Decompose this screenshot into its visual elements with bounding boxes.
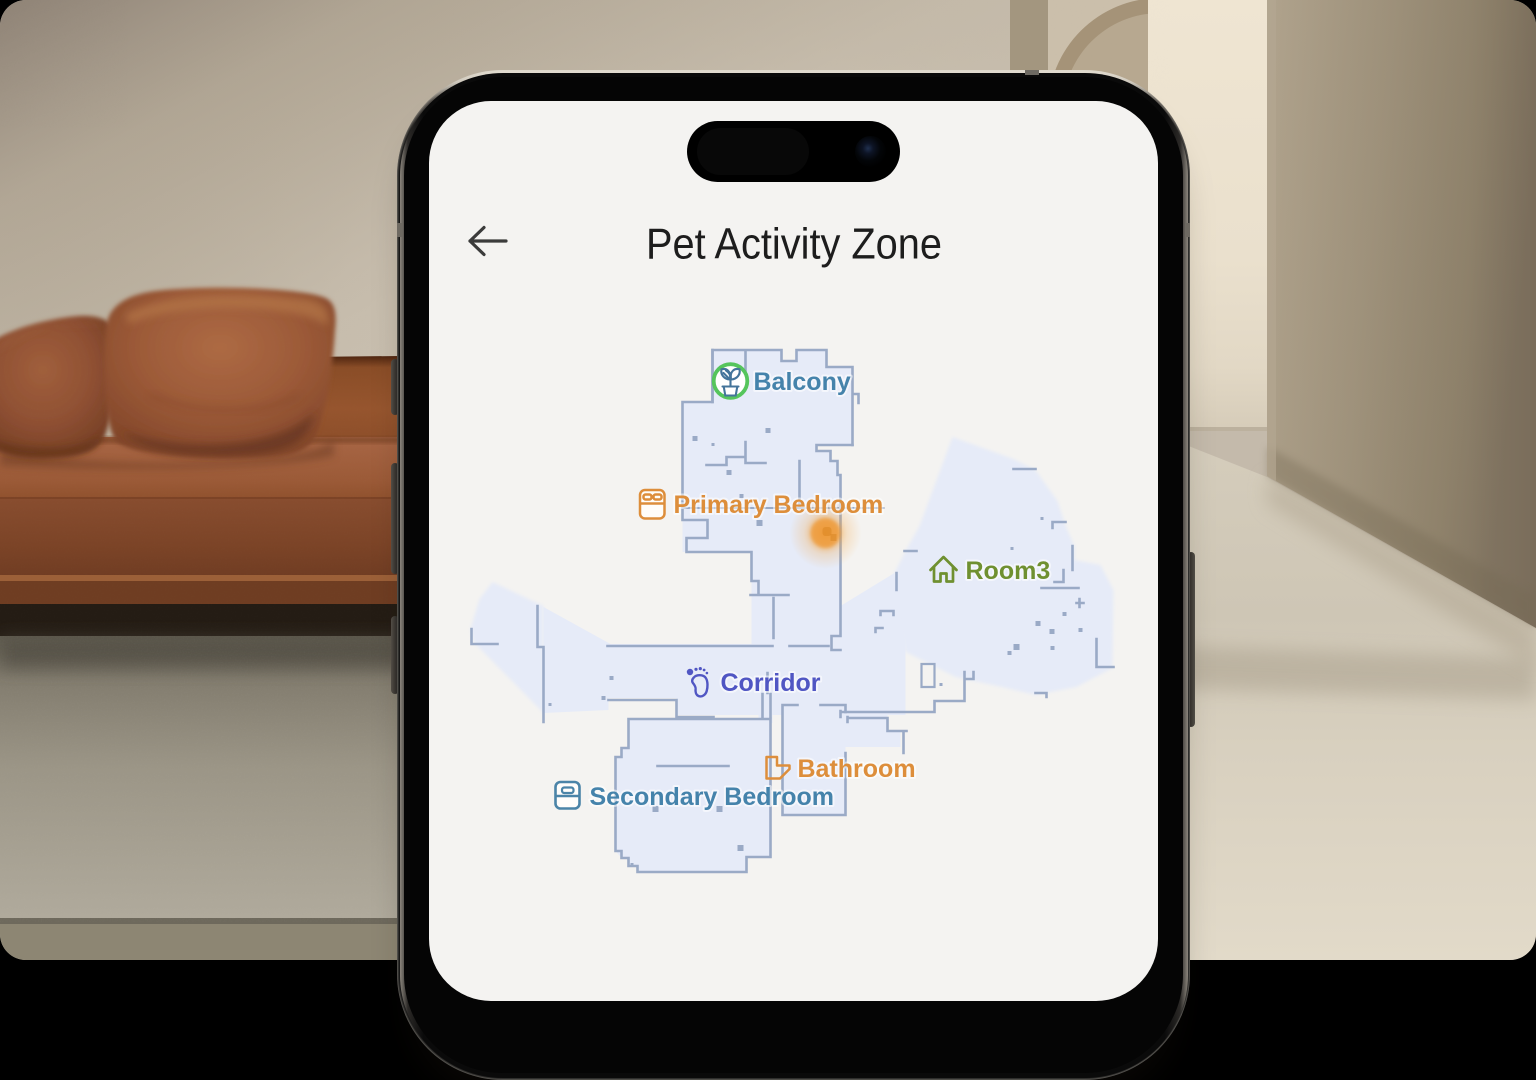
svg-text:Primary Bedroom: Primary Bedroom: [673, 491, 883, 519]
svg-text:Secondary Bedroom: Secondary Bedroom: [589, 783, 834, 811]
svg-text:Room3: Room3: [965, 557, 1050, 585]
svg-text:Balcony: Balcony: [753, 368, 850, 396]
svg-text:Pet Activity Zone: Pet Activity Zone: [646, 221, 942, 269]
svg-text:Bathroom: Bathroom: [797, 755, 915, 783]
svg-text:Corridor: Corridor: [720, 669, 820, 697]
